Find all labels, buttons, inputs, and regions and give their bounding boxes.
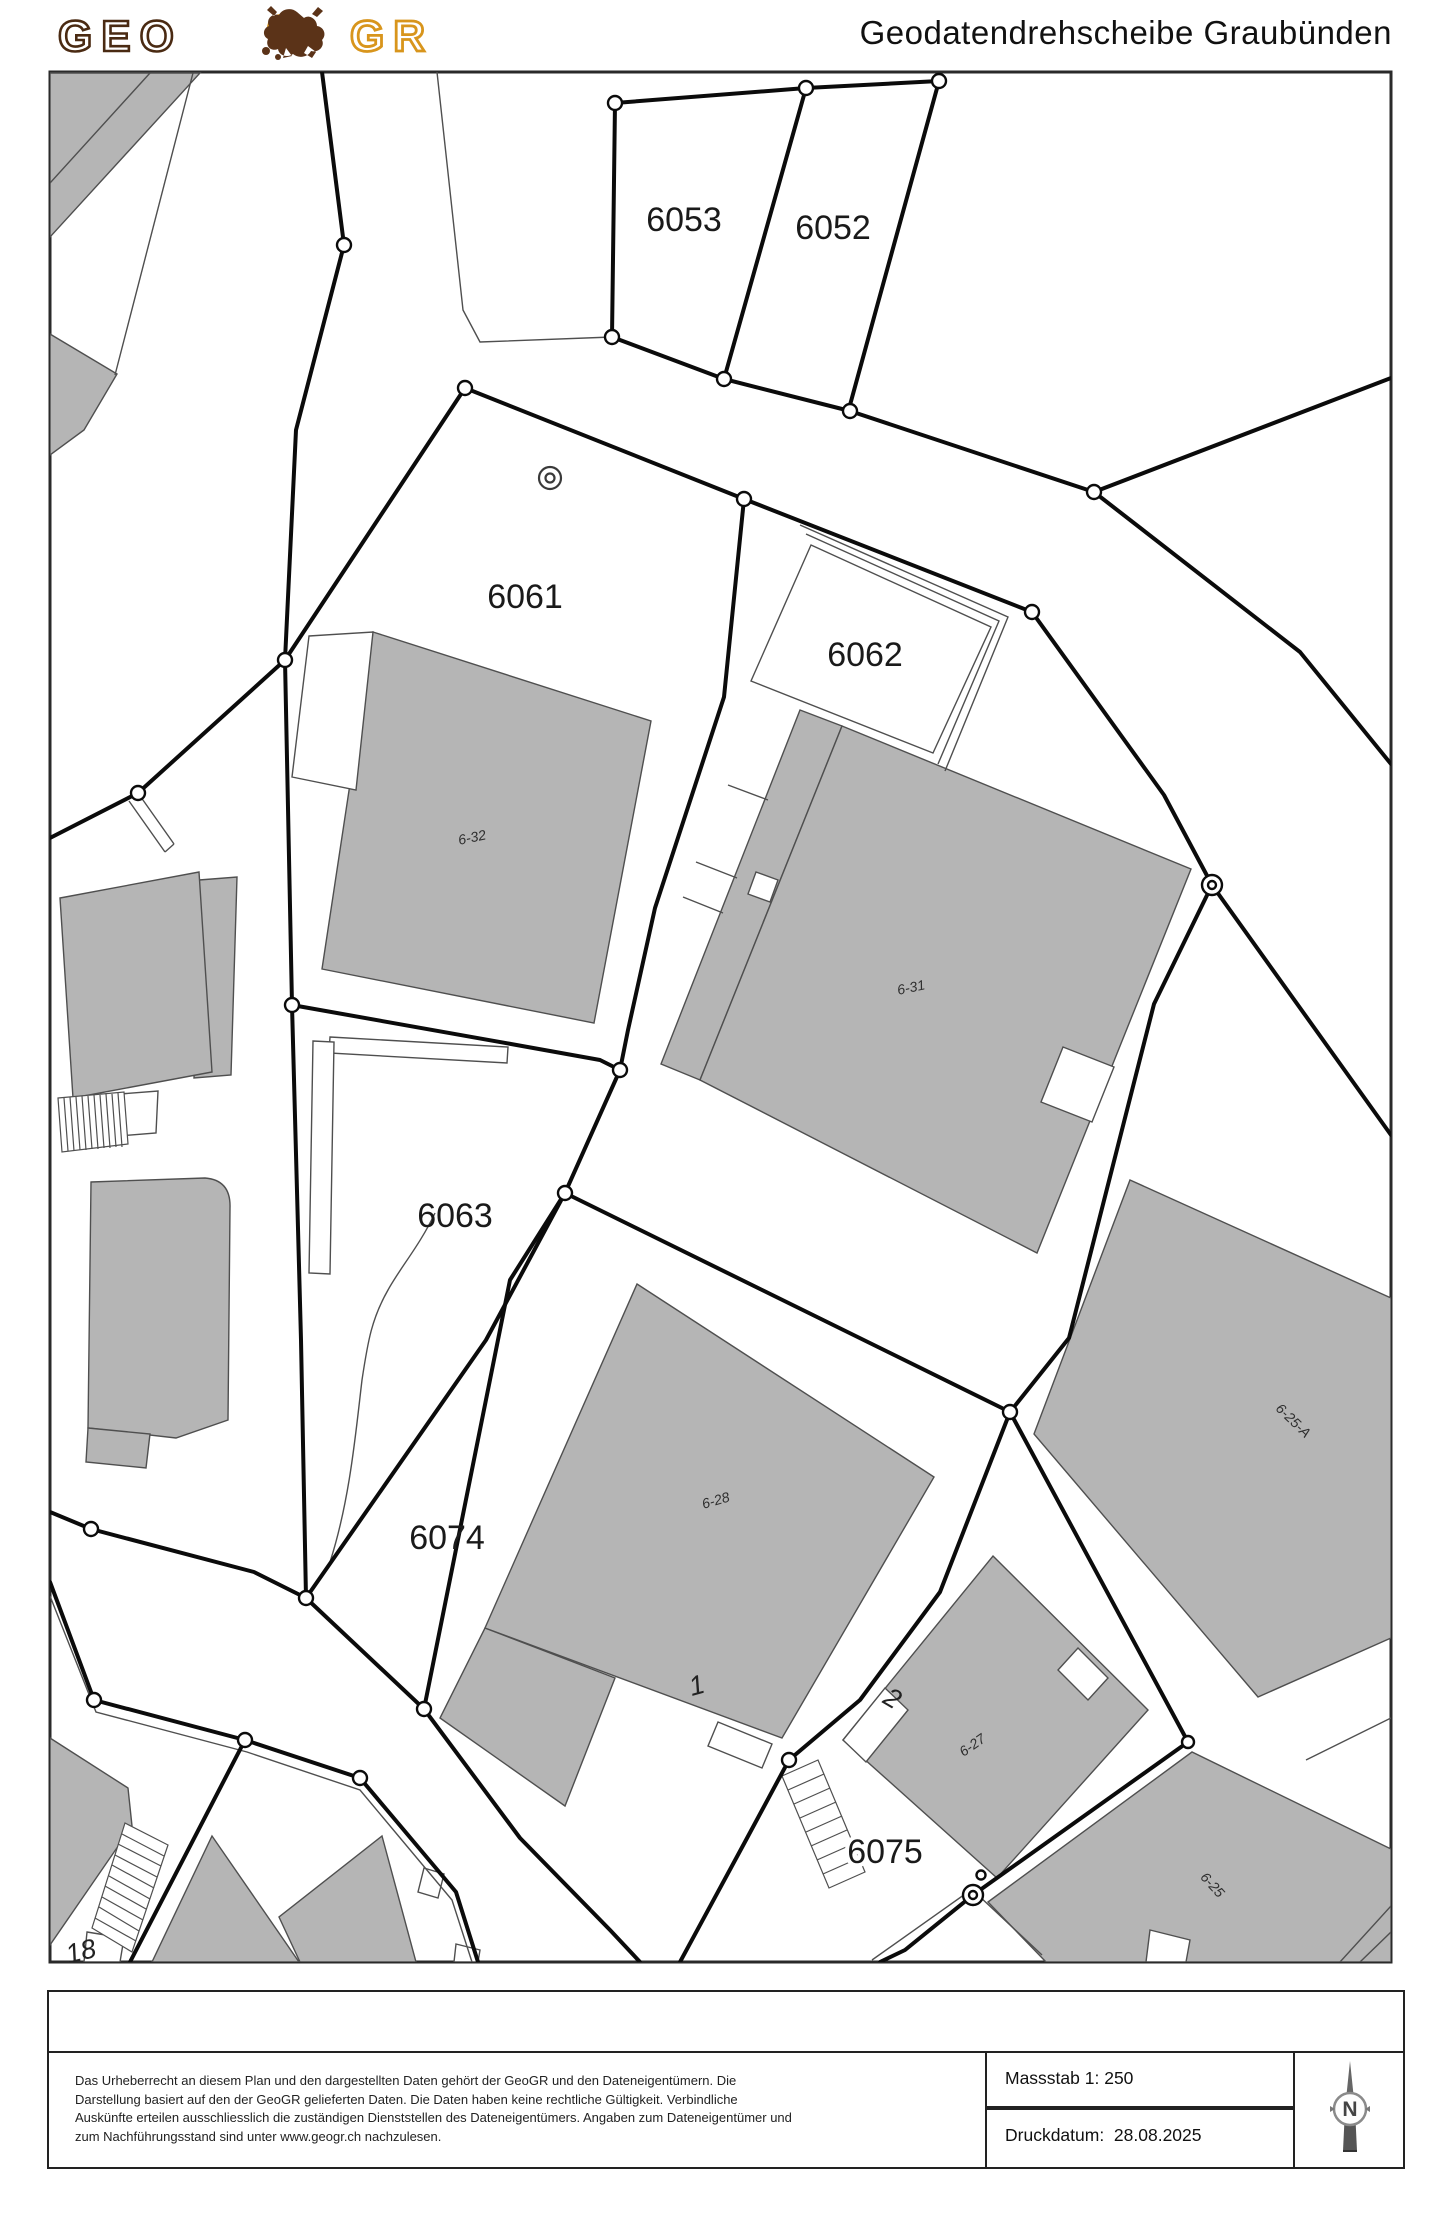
copyright-line: Das Urheberrecht an diesem Plan und den … — [75, 2072, 792, 2091]
compass-letter: N — [1342, 2098, 1357, 2121]
north-arrow-icon: N — [1296, 2053, 1404, 2163]
survey-point-icon — [539, 467, 561, 489]
print-preview-page: GEO GR Geodatendrehscheibe Graubünden — [0, 0, 1440, 2214]
map-area: 60536052606160626063607460756-326-316-28… — [0, 0, 1440, 2214]
scale-label: Massstab 1: 250 — [1005, 2068, 1133, 2089]
cadastral-map-canvas: 60536052606160626063607460756-326-316-28… — [0, 0, 1440, 2214]
parcel-number-label: 6052 — [795, 209, 871, 247]
parcel-number-label: 6061 — [487, 578, 563, 616]
parcel-number-label: 6075 — [847, 1833, 923, 1871]
staircase-hatch-left — [58, 1092, 128, 1152]
print-date-label: Druckdatum: 28.08.2025 — [1005, 2125, 1202, 2146]
parcel-number-label: 6062 — [827, 636, 903, 674]
copyright-line: Auskünfte erteilen ausschliesslich die z… — [75, 2109, 792, 2128]
parcel-number-label: 6063 — [417, 1197, 493, 1235]
copyright-text: Das Urheberrecht an diesem Plan und den … — [75, 2072, 792, 2146]
copyright-line: zum Nachführungsstand sind unter www.geo… — [75, 2128, 792, 2147]
parcel-number-label: 6053 — [646, 201, 722, 239]
copyright-line: Darstellung basiert auf den der GeoGR ge… — [75, 2091, 792, 2110]
parcel-number-label: 6074 — [409, 1519, 485, 1557]
